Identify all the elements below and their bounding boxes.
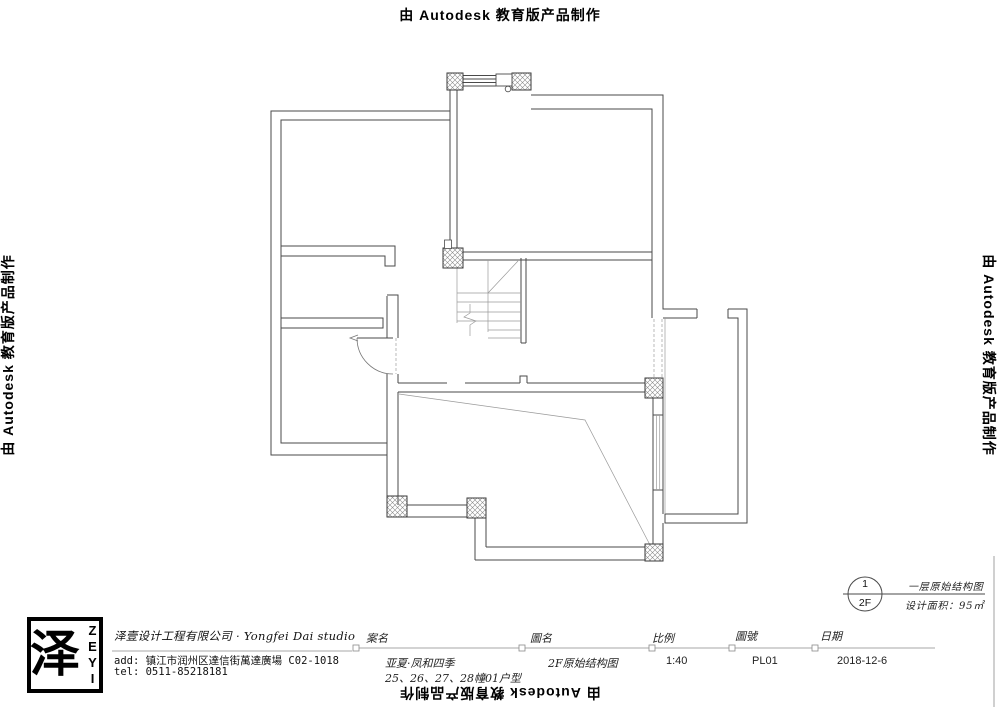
company-logo: 泽 ZEYI (27, 617, 103, 693)
field-value-date: 2018-12-6 (837, 655, 887, 667)
small-circle-marker (505, 86, 511, 92)
diagonal-lines (399, 394, 650, 545)
annotation-area: 设计面积：95㎡ (905, 597, 984, 612)
company-name: 泽壹设计工程有限公司 · Yongfei Dai studio (114, 628, 355, 644)
level-circle-number: 1 (855, 578, 875, 590)
field-value-project-2: 25、26、27、28幢01户型 (385, 670, 521, 686)
stair-break-symbol (464, 304, 476, 336)
stamp-bottom: 由 Autodesk 教育版产品制作 (300, 683, 700, 703)
dashed-openings (396, 319, 662, 377)
floor-plan-drawing (0, 0, 1000, 707)
level-circle-floor: 2F (853, 597, 877, 609)
stamp-top: 由 Autodesk 教育版产品制作 (300, 5, 700, 25)
logo-word: ZEYI (85, 623, 99, 687)
annotation-title: 一层原始结构图 (908, 578, 984, 593)
field-label-date: 日期 (820, 628, 842, 644)
field-label-project: 案名 (366, 630, 388, 646)
field-value-drawing: 2F原始结构图 (548, 655, 618, 671)
company-tel: tel: 0511-85218181 (114, 666, 228, 678)
field-value-project: 亚夏·凤和四季 (385, 655, 455, 671)
field-label-number: 圖號 (735, 628, 757, 644)
columns (387, 73, 663, 561)
logo-glyph: 泽 (30, 624, 80, 684)
thin-lines (399, 260, 665, 545)
field-label-scale: 比例 (652, 630, 674, 646)
field-label-drawing: 圖名 (530, 630, 552, 646)
column-notch (445, 240, 452, 249)
door-swing (350, 335, 393, 374)
wall-lines (271, 76, 747, 561)
field-value-scale: 1:40 (666, 655, 687, 667)
drawing-sheet: 由 Autodesk 教育版产品制作 由 Autodesk 教育版产品制作 由 … (0, 0, 1000, 707)
stamp-left: 由 Autodesk 教育版产品制作 (0, 155, 18, 555)
field-value-number: PL01 (752, 655, 778, 667)
window-box (496, 74, 512, 86)
stamp-right: 由 Autodesk 教育版产品制作 (979, 155, 999, 555)
